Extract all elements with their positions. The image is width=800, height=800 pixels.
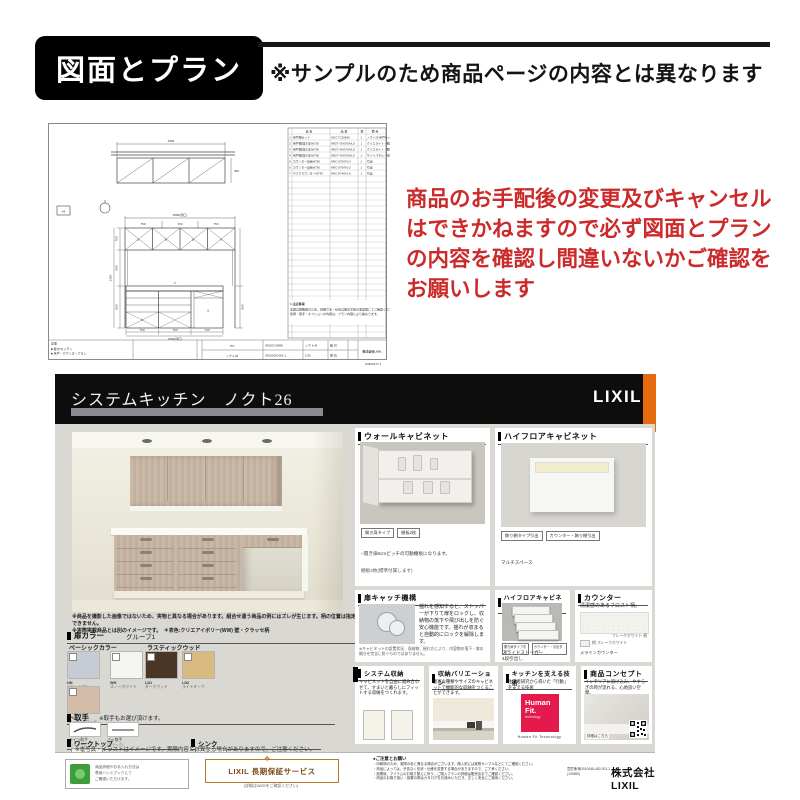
swatch-checkbox[interactable] <box>69 688 77 696</box>
panel-footnote: ※キャビネットの設置状況、収納物、揺れ方により、内容物の落下・扉の開きを完全に防… <box>359 647 486 657</box>
parts-table-cell: 吊戸棚(開き扉)W750 <box>293 142 319 146</box>
swatch-color <box>67 651 100 679</box>
left-dim-3: 850 <box>115 304 119 309</box>
swatch-checkbox[interactable] <box>112 653 120 661</box>
door-color-swatch: LD1ダークウッド <box>145 651 176 690</box>
counter-texture-photo <box>580 612 649 634</box>
wall-marker: A8 <box>62 210 66 214</box>
feature-chip: 飾り棚タイプ引出 <box>501 531 543 541</box>
render-disclaimer-line1: ※商品を撮影した画像ではないため、実物と異なる場合があります。組合せ違う商品の例… <box>72 614 360 628</box>
swatch-name: ライトオーク <box>182 685 213 690</box>
handle-thumb <box>69 722 101 737</box>
notice-line: ・商品のお取り扱い・設置の際はカタログをお読みいただき、正しく安全にご使用くださ… <box>373 776 568 781</box>
counter-swatch-row: 柄:フレークホワイト <box>580 640 627 647</box>
drawer-stack-photo <box>502 603 562 641</box>
title-bar-icon <box>498 598 501 607</box>
panel-title: システム収納 <box>364 669 404 678</box>
panel-highfloor-cabinet: ハイフロアキャビネット 飾り棚タイプ引出 カウンター・飾り棚引出 マルチスペース <box>495 428 652 586</box>
section-marker-icon <box>67 714 71 722</box>
kitchen-plan-drawing: 2584 350 A8 <box>45 122 390 368</box>
parts-table-cell: クリエライト・棚2枚 <box>367 142 390 146</box>
base-dim-3: 740 <box>204 328 209 332</box>
door-color-swatch: NNソリッドグレー <box>67 651 98 690</box>
parts-table-cell: クリエライト・棚2枚 <box>367 148 390 152</box>
swatch-color <box>182 651 215 679</box>
qr-code <box>629 720 647 738</box>
left-total-dim: 2350 <box>109 274 113 281</box>
render-wall-cabinet <box>130 456 282 511</box>
left-dim-1: 700 <box>115 236 119 241</box>
eco-badge-icon <box>70 764 90 784</box>
swatch-checkbox[interactable] <box>184 653 192 661</box>
tb-c1b: 4202D3N-001-1 <box>265 354 287 358</box>
parts-table-cell: 吊戸棚(開き扉)W700 <box>293 148 319 152</box>
feature-chip: カウンター・飾り棚引出 <box>546 531 600 541</box>
ref-b1: ① <box>174 281 177 285</box>
qr-caption: 詳細はこちら <box>586 734 609 739</box>
door-color-group: グループ1 <box>126 631 155 641</box>
panel-note: 棚板2枚(標準付属します) <box>361 568 485 574</box>
warranty-sub: (詳細はWEBをご確認ください) <box>205 783 337 789</box>
sample-note: ※サンプルのため商品ページの内容とは異なります <box>270 58 770 88</box>
plan-width-dim: 2584 <box>168 139 175 143</box>
parts-table-cell: カウンター収納W750 <box>293 160 320 164</box>
company-name: 株式会社 LIXIL <box>611 765 655 792</box>
ref-w2: ⑤ <box>165 238 168 242</box>
door-color-swatch: WHスノーホワイト <box>110 651 141 690</box>
design-rights: 意匠権:第2010048-482-001-1 (100890) <box>567 767 613 776</box>
lixil-logo: LIXIL <box>593 387 642 407</box>
tb-c3a: 縮 尺 <box>330 343 337 348</box>
right-dim: 850 <box>241 304 245 309</box>
panel-title: 商品コンセプト <box>590 669 643 679</box>
swatch-name: スノーホワイト <box>110 685 141 690</box>
panel-door-catch: 扉キャッチ機構 揺れを感知すると、ストッパーが下りて扉をロックし、収納物の落下や… <box>355 590 490 662</box>
panel-concept: 商品コンセプト インテリアに溶け込み、やすらぎの時が流れる、心地良い空間。 詳細… <box>581 666 652 744</box>
panel-body: 豊富な種類やサイズのキャビネットで機能的な収納をつくることができます。 <box>433 679 494 696</box>
swatch-checkbox[interactable] <box>147 653 155 661</box>
handle-note: ※取手もお選び頂けます。 <box>99 714 164 722</box>
parts-table-cell: NRC-S75AT/LO <box>331 160 352 164</box>
notes-title: 1.注記事項 <box>290 301 306 306</box>
plan-depth-dim: 350 <box>234 169 239 173</box>
render-base-cabinet <box>114 528 304 598</box>
tb-company: 株式会社LIXIL <box>362 349 382 354</box>
left-dim-2: 600 <box>115 265 119 270</box>
warranty-box: ❖ LIXIL 長期保証サービス <box>205 759 339 783</box>
swatch-color <box>67 686 100 714</box>
title-bar-icon <box>584 670 587 679</box>
panel-title: 扉キャッチ機構 <box>364 593 417 603</box>
ref-b2: ② <box>141 318 144 322</box>
chip-row: 開き扉タイプ 棚板2枚 <box>361 528 423 538</box>
base-dim-1: 750 <box>139 328 144 332</box>
gutter-mark <box>353 667 358 682</box>
parts-table-cell: NR2T-75A075A/LO <box>331 154 356 158</box>
tb-name: 757 <box>229 344 234 348</box>
parts-table-cell: 引出 <box>367 160 373 164</box>
counter-swatch <box>580 640 590 647</box>
table-notes: 1.注記事項 本図は概略図のため、詳細寸法・仕様は御注文前の承認図にてご確認くだ… <box>289 300 391 324</box>
certification-text: 商品詳細やお手入れ方法は 専用ハンドブックにて ご確認いただけます。 <box>95 764 139 782</box>
elev-dim-2: 700 <box>177 222 182 226</box>
catalog-title: システムキッチン ノクト26 <box>71 386 293 410</box>
ref-w3: ⑥ <box>192 238 195 242</box>
title-bar-icon <box>578 594 581 603</box>
certification-box: 商品詳細やお手入れ方法は 専用ハンドブックにて ご確認いただけます。 <box>65 759 189 789</box>
title-bar-icon <box>498 432 501 441</box>
parts-table-cell: NOCT-C2584S <box>331 136 350 140</box>
panel-wall-cabinet: ウォールキャビネット 開き扉タイプ 棚板2枚 ○開き扉6cmピッチの可動棚板にな… <box>355 428 490 586</box>
panel-system-storage: システム収納 キャビネットを自由に組み合わせて、すまいと暮らしにフィットする収納… <box>355 666 424 744</box>
panel-caption: 4段引出し <box>502 656 523 662</box>
chip-row: 飾り棚タイプ引出 カウンター・飾り棚引出 <box>501 531 603 541</box>
tb-model: ノクト26 <box>226 353 239 358</box>
tb-note2: ■ 吊戸・カウンタープラン <box>51 351 86 356</box>
downlight-icon <box>202 439 212 443</box>
tb-pageno: A3202477-1 <box>365 362 382 366</box>
handle-thumb <box>107 722 139 737</box>
parts-table-cell: サイドパネル・化粧 <box>367 154 390 158</box>
panel-note: ○開き扉6cmピッチの可動棚板になります。 <box>361 551 485 557</box>
tb-note1: ■ 壁付Iキッチン <box>51 346 72 351</box>
panel-caption: マルチスペース <box>501 560 533 566</box>
header-divider <box>258 42 770 47</box>
section-marker-icon <box>67 739 71 747</box>
swatch-name: ダークウッド <box>145 685 176 690</box>
panel-highfloor-drawer: ハイフロアキャビネット 開き扉タイプ引出 カウンター・引出タイプ スライドストッ… <box>495 590 570 662</box>
col-rem: 備 考 <box>372 129 379 134</box>
catalog-header-bar: システムキッチン ノクト26 LIXIL <box>55 374 655 424</box>
parts-table-cell: NRC-S75AT/LO <box>331 166 352 170</box>
tb-c2b: 1/30 <box>305 354 311 358</box>
panel-title: カウンター <box>584 593 622 603</box>
notes-line2: 色柄・取手・オプションの内容は、プラン内容により異なります。 <box>290 311 380 316</box>
warranty-title: LIXIL 長期保証サービス <box>206 766 338 777</box>
counter-label: 柄:フレークホワイト <box>592 641 627 646</box>
line-handle-icon <box>74 728 96 732</box>
feature-chip: 棚板2枚 <box>397 528 420 538</box>
wall-cabinet-photo <box>360 442 485 524</box>
panel-title: ハイフロアキャビネット <box>504 431 597 442</box>
section-title-box: 図面とプラン <box>35 36 263 100</box>
door-color-heading: 扉カラー <box>74 630 104 641</box>
col-qty: 数 <box>360 129 363 134</box>
kitchen-render <box>72 432 343 612</box>
section-marker-icon <box>67 632 71 640</box>
feature-chip: 開き扉タイプ <box>361 528 394 538</box>
kitchen-photo <box>433 698 494 740</box>
downlight-icon <box>142 439 152 443</box>
swatch-row-1: NNソリッドグレーWHスノーホワイトLD1ダークウッドLD2ライトオーク <box>67 651 213 690</box>
logo-text: technology <box>521 715 559 719</box>
col-name: 品 名 <box>306 129 313 134</box>
swatch-color <box>145 651 178 679</box>
ref-w4: ⑦ <box>220 238 223 242</box>
cabinet-thumb <box>391 710 413 740</box>
notice-block: ●ご注意とお願い ・印刷物のため、実際の色と異なる場合がございます。購入前には実… <box>373 756 568 781</box>
parts-table-cell: NRC-D74AT/LO <box>331 172 352 176</box>
panel-technology: キッチンを支える技術 生活者研究から導いた「行動」を支える技術 Human Fi… <box>503 666 576 744</box>
elev-dim-1: 750 <box>140 222 145 226</box>
base-dim-2: 750 <box>172 328 177 332</box>
parts-table-cell: 吊戸棚(開き扉)W750 <box>293 154 319 158</box>
highfloor-photo <box>501 443 646 527</box>
notes-line1: 本図は概略図のため、詳細寸法・仕様は御注文前の承認図にてご確認ください。 <box>290 307 390 312</box>
ref-w1: ④ <box>137 238 140 242</box>
human-fit-logo: Human Fit. technology <box>521 694 559 732</box>
col-code: 品 番 <box>341 129 348 134</box>
cabinet-thumb <box>363 710 385 740</box>
catalog-body: ※商品を撮影した画像ではないため、実物と異なる場合があります。組合せ違う商品の例… <box>55 424 655 752</box>
panel-body: 清潔感のあるフロスト柄。 <box>580 603 648 610</box>
catch-mechanism-photo <box>359 604 415 644</box>
panel-body: 揺れを感知すると、ストッパーが下りて扉をロックし、収納物の落下や飛び出しを防ぐ安… <box>419 604 485 646</box>
parts-table-cell: NR2T-70A070A/LO <box>331 148 356 152</box>
parts-table-cell: 吊戸棚セット <box>293 136 310 140</box>
swatch-color <box>110 651 143 679</box>
title-bar-icon <box>358 432 361 441</box>
panel-storage-variation: 収納バリエーション 豊富な種類やサイズのキャビネットで機能的な収納をつくることが… <box>429 666 498 744</box>
concept-photo: 詳細はこちら <box>584 694 649 740</box>
counter-label: フレークホワイト 柄 <box>580 634 647 639</box>
title-bar-icon <box>358 594 361 603</box>
page-title: 図面とプラン <box>56 47 242 89</box>
parts-table-cell: カウンター収納W750 <box>293 166 320 170</box>
ribbon-icon: ❖ <box>264 755 270 763</box>
door-color-swatch: LD2ライトオーク <box>182 651 213 690</box>
tb-c3b: 単 位 <box>330 353 337 358</box>
parts-table-cell: 引出 <box>367 166 373 170</box>
page: 図面とプラン ※サンプルのため商品ページの内容とは異なります 2584 <box>0 0 800 800</box>
parts-table-cell: 引出 <box>367 172 373 176</box>
swatch-checkbox[interactable] <box>69 653 77 661</box>
panel-counter: カウンター 清潔感のあるフロスト柄。 フレークホワイト 柄 柄:フレークホワイト… <box>575 590 652 662</box>
logo-text: Fit. <box>521 707 559 715</box>
tb-label: 記事 <box>51 341 57 346</box>
parts-table-cell: NR2T-75A075A/LO <box>331 142 356 146</box>
parts-table-cell: ノクト26 吊戸セット(LO) <box>367 136 390 140</box>
render-desk-space <box>242 535 304 591</box>
ref-b3: ③ <box>207 309 210 313</box>
catalog-footer: 商品詳細やお手入れ方法は 専用ハンドブックにて ご確認いただけます。 ❖ LIX… <box>55 752 655 797</box>
catalog-sheet: システムキッチン ノクト26 LIXIL <box>55 372 655 796</box>
catalog-subtitle-bar <box>71 408 323 416</box>
logo-caption: Human Fit Technology <box>503 735 576 739</box>
panel-body: キャビネットを自由に組み合わせて、すまいと暮らしにフィットする収納をつくれます。 <box>359 679 420 696</box>
panel-title: ウォールキャビネット <box>364 431 449 442</box>
cancel-warning-text: 商品のお手配後の変更及びキャンセルはできかねますので必ず図面とプランの内容を確認… <box>406 184 778 304</box>
notice-lines: ・印刷物のため、実際の色と異なる場合がございます。購入前には実物サンプルなどにて… <box>373 762 568 781</box>
panel-body: 生活者研究から導いた「行動」を支える技術 <box>508 679 571 690</box>
door-color-header: 扉カラー グループ1 <box>67 630 359 644</box>
tb-c2a: ノクト-B <box>305 343 317 348</box>
elev-dim-3: 750 <box>213 222 218 226</box>
counter-label: メラミンカウンター <box>580 650 618 656</box>
elev-total-dim: 2584(間口) <box>173 212 188 217</box>
storage-thumbs <box>363 710 413 740</box>
parts-table-cell: デスクカウンターW740 <box>293 172 323 176</box>
downlight-icon <box>262 439 272 443</box>
tb-c1a: 4202D 02890 <box>265 344 283 348</box>
title-bar-icon <box>358 669 361 678</box>
render-floor <box>72 600 343 612</box>
